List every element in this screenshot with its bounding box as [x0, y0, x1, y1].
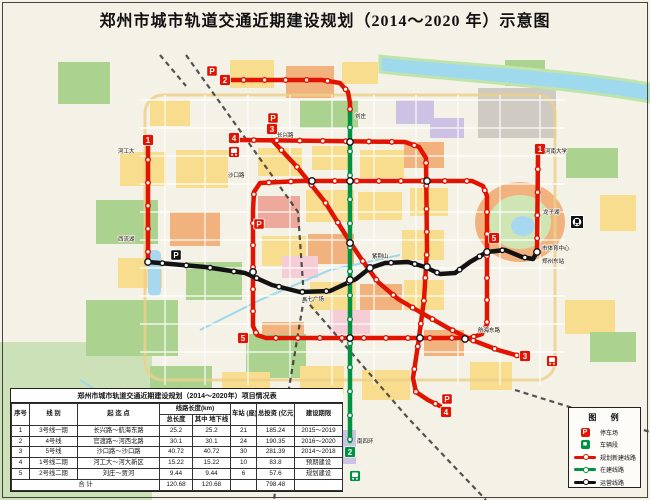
- station-marker: [423, 276, 428, 281]
- station-marker: [146, 181, 151, 186]
- table-row: 13号线一期长兴路～航海东路25.225.221185.242015～2019: [12, 425, 343, 436]
- station-marker: [274, 336, 279, 341]
- table-cell: 15.22: [160, 458, 193, 469]
- station-marker: [348, 269, 353, 274]
- station-marker: [414, 389, 419, 394]
- interchange-station-marker: [424, 178, 430, 184]
- interchange-station-marker: [484, 249, 490, 255]
- station-marker: [340, 336, 345, 341]
- station-marker: [348, 413, 353, 418]
- station-marker: [283, 78, 288, 83]
- station-marker: [536, 167, 541, 172]
- station-marker: [348, 221, 353, 226]
- table-cell: 57.6: [257, 469, 295, 480]
- station-marker: [535, 213, 540, 218]
- station-marker: [323, 201, 328, 206]
- table-cell: 15.22: [193, 458, 231, 469]
- station-marker: [348, 107, 353, 112]
- table-total-label: 合 计: [12, 480, 160, 491]
- station-marker: [450, 336, 455, 341]
- map-label: 5: [492, 234, 497, 243]
- station-marker: [300, 290, 305, 295]
- station-marker: [457, 267, 462, 272]
- table-cell: 120.68: [160, 480, 193, 491]
- screenshot-root: 1122334455 PPPPP 河工大西流湖长兴路沙口路刘庄南四环二七广场紫荆…: [0, 0, 650, 500]
- interchange-station-marker: [347, 139, 353, 145]
- station-marker: [295, 165, 300, 170]
- station-marker: [482, 188, 487, 193]
- table-cell: 沙口路～沙口路: [78, 447, 160, 458]
- table-cell: 30.1: [193, 436, 231, 447]
- station-marker: [232, 269, 237, 274]
- station-marker: [146, 158, 151, 163]
- map-label: P: [256, 220, 262, 229]
- map-label: 龙子湖: [543, 208, 560, 216]
- table-cell: 25.2: [193, 425, 231, 436]
- table-cell: 官渡路～河西北路: [78, 436, 160, 447]
- map-label: 沙口路: [228, 171, 245, 179]
- station-marker: [208, 265, 213, 270]
- map-label: P: [270, 114, 276, 123]
- table-row: 35号线沙口路～沙口路40.7240.7230281.392014～2018: [12, 447, 343, 458]
- table-cell: 9.44: [193, 469, 231, 480]
- table-cell: 21: [231, 425, 257, 436]
- interchange-station-marker: [347, 335, 353, 341]
- station-marker: [348, 437, 353, 442]
- station-marker: [389, 260, 394, 265]
- station-marker: [324, 289, 329, 294]
- interchange-station-marker: [347, 240, 353, 246]
- station-marker: [262, 78, 267, 83]
- map-label: 南四环: [357, 437, 374, 445]
- legend-item-label: 运营线路: [600, 478, 624, 487]
- legend-item-label: 在建线路: [600, 465, 624, 474]
- station-marker: [422, 298, 427, 303]
- map-label: 5: [241, 334, 246, 343]
- station-marker: [412, 262, 417, 267]
- station-marker: [406, 336, 411, 341]
- table-cell: 3号线一期: [30, 425, 78, 436]
- table-cell: 40.72: [160, 447, 193, 458]
- map-label: 郑州东站: [542, 257, 565, 265]
- station-marker: [289, 179, 294, 184]
- station-marker: [377, 179, 382, 184]
- station-marker: [415, 344, 420, 349]
- line-sample-icon: [574, 468, 596, 471]
- col-header-underground: 其中 地下线: [193, 414, 231, 425]
- station-marker: [477, 254, 482, 259]
- interchange-station-marker: [462, 336, 468, 342]
- table-cell: 河工大～河大新区: [78, 458, 160, 469]
- table-cell: 24: [231, 436, 257, 447]
- table-cell: 10: [231, 458, 257, 469]
- station-marker: [343, 87, 348, 92]
- table-cell: 长兴路～航海东路: [78, 425, 160, 436]
- station-marker: [471, 338, 476, 343]
- table-cell: 5: [12, 469, 30, 480]
- map-label: 2: [348, 448, 353, 457]
- station-marker: [410, 305, 415, 310]
- interchange-station-marker: [347, 178, 353, 184]
- legend: 图 例 P停车场■车辆段规划新建线路在建线路运营线路: [568, 407, 641, 488]
- legend-item: 规划新建线路: [573, 451, 636, 464]
- station-marker: [146, 204, 151, 209]
- table-cell: 9.44: [160, 469, 193, 480]
- station-marker: [514, 353, 519, 358]
- depot-icon: [350, 471, 361, 482]
- map-label: 3: [270, 125, 275, 134]
- map-label: 二七广场: [302, 295, 325, 303]
- station-marker: [267, 180, 272, 185]
- table-cell: 2号线二期: [30, 469, 78, 480]
- station-marker: [523, 255, 528, 260]
- interchange-station-marker: [424, 264, 430, 270]
- depot-icon: [547, 356, 558, 367]
- table-cell: 1: [12, 425, 30, 436]
- station-marker: [251, 138, 256, 143]
- table-cell: 刘庄～贾河: [78, 469, 160, 480]
- map-label: 西流湖: [118, 235, 135, 243]
- line-sample-icon: [574, 481, 596, 484]
- interchange-station-marker: [309, 178, 315, 184]
- station-marker: [485, 298, 490, 303]
- table-cell: 281.39: [257, 447, 295, 458]
- interchange-station-marker: [367, 265, 373, 271]
- station-marker: [435, 270, 440, 275]
- station-marker: [184, 263, 189, 268]
- station-marker: [399, 179, 404, 184]
- station-marker: [391, 293, 396, 298]
- station-marker: [348, 125, 353, 130]
- station-marker: [424, 253, 429, 258]
- station-marker: [430, 317, 435, 322]
- table-cell: 2015～2019: [295, 425, 343, 436]
- station-marker: [412, 143, 417, 148]
- station-marker: [251, 287, 256, 292]
- table-cell: [295, 480, 343, 491]
- station-marker: [348, 365, 353, 370]
- map-label: 2: [223, 76, 228, 85]
- station-marker: [318, 336, 323, 341]
- table-cell: 3: [12, 447, 30, 458]
- station-marker: [348, 173, 353, 178]
- table-cell: 预期建设: [295, 458, 343, 469]
- map-label: 河南大学: [545, 147, 568, 155]
- table-cell: 2016～2020: [295, 436, 343, 447]
- station-marker: [279, 148, 284, 153]
- table-row: 41号线二期河工大～河大新区15.2215.221083.8预期建设: [12, 458, 343, 469]
- station-marker: [251, 243, 256, 248]
- col-header-total-length: 总长度: [160, 414, 193, 425]
- col-header-length-group: 线路长度(km): [160, 404, 231, 415]
- table-cell: 120.68: [193, 480, 231, 491]
- station-marker: [361, 259, 366, 264]
- map-label: 紫荆山: [372, 252, 389, 260]
- table-title: 郑州市城市轨道交通近期建设规划（2014～2020年）项目情况表: [11, 389, 343, 403]
- map-label: 3: [523, 352, 528, 361]
- project-table: 郑州市城市轨道交通近期建设规划（2014～2020年）项目情况表 序号 线 别 …: [10, 388, 343, 492]
- station-marker: [348, 293, 353, 298]
- map-label: 长兴路: [277, 131, 294, 139]
- station-marker: [252, 192, 257, 197]
- station-marker: [412, 367, 417, 372]
- col-header-line: 线 别: [30, 404, 78, 426]
- legend-item-label: 停车场: [600, 428, 618, 437]
- map-label: 河工大: [118, 147, 135, 155]
- table-cell: 4: [12, 458, 30, 469]
- table-cell: 83.8: [257, 458, 295, 469]
- table-row: 52号线二期刘庄～贾河9.449.44657.6规划建设: [12, 469, 343, 480]
- station-marker: [160, 261, 165, 266]
- table-cell: 2014～2018: [295, 447, 343, 458]
- map-label: 4: [444, 408, 449, 417]
- table-cell: 4号线: [30, 436, 78, 447]
- depot-icon: [229, 147, 240, 158]
- table-cell: 30.1: [160, 436, 193, 447]
- col-header-investment: 总投资 (亿元): [257, 404, 295, 426]
- station-marker: [325, 79, 330, 84]
- station-marker: [492, 346, 497, 351]
- map-label: 4: [232, 134, 237, 143]
- station-marker: [146, 227, 151, 232]
- station-marker: [425, 230, 430, 235]
- interchange-station-marker: [250, 269, 256, 275]
- station-marker: [320, 139, 325, 144]
- station-marker: [348, 389, 353, 394]
- table-cell: 40.72: [193, 447, 231, 458]
- station-marker: [297, 138, 302, 143]
- line-sample-icon: [574, 456, 596, 459]
- table-cell: 25.2: [160, 425, 193, 436]
- station-marker: [251, 309, 256, 314]
- station-marker: [433, 401, 438, 406]
- railway-station-icon: [571, 216, 584, 229]
- station-marker: [146, 250, 151, 255]
- table-cell: 190.35: [257, 436, 295, 447]
- map-label: 航海东路: [478, 326, 501, 334]
- col-header-section: 起 迄 点: [78, 404, 160, 426]
- interchange-station-marker: [347, 277, 353, 283]
- station-marker: [485, 320, 490, 325]
- interchange-station-marker: [417, 335, 423, 341]
- station-marker: [348, 317, 353, 322]
- station-marker: [333, 179, 338, 184]
- table-cell: 798.48: [257, 480, 295, 491]
- table-cell: [231, 480, 257, 491]
- col-header-stations: 车站 (座): [231, 404, 257, 426]
- station-marker: [428, 336, 433, 341]
- station-marker: [384, 336, 389, 341]
- table-cell: 规划建设: [295, 469, 343, 480]
- station-marker: [465, 179, 470, 184]
- station-marker: [296, 336, 301, 341]
- station-marker: [348, 149, 353, 154]
- station-marker: [254, 276, 259, 281]
- depot-icon: ■: [581, 440, 590, 449]
- map-label: P: [209, 67, 215, 76]
- station-marker: [389, 140, 394, 145]
- station-marker: [424, 207, 429, 212]
- station-marker: [355, 179, 360, 184]
- station-marker: [443, 179, 448, 184]
- station-marker: [419, 321, 424, 326]
- table-cell: 2: [12, 436, 30, 447]
- table-cell: 6: [231, 469, 257, 480]
- station-marker: [485, 276, 490, 281]
- station-marker: [348, 197, 353, 202]
- table-cell: 1号线二期: [30, 458, 78, 469]
- map-label: P: [173, 251, 179, 260]
- station-marker: [500, 248, 505, 253]
- col-header-seq: 序号: [12, 404, 30, 426]
- station-marker: [450, 328, 455, 333]
- map-label: 1: [146, 136, 151, 145]
- station-marker: [254, 330, 259, 335]
- col-header-period: 建设期限: [295, 404, 343, 426]
- table-row: 24号线官渡路～河西北路30.130.124190.352016～2020: [12, 436, 343, 447]
- station-marker: [277, 284, 282, 289]
- table-total-row: 合 计120.68120.68798.48: [12, 480, 343, 491]
- interchange-station-marker: [534, 249, 540, 255]
- station-marker: [362, 336, 367, 341]
- legend-item: 在建线路: [573, 464, 636, 477]
- station-marker: [535, 190, 540, 195]
- map-label: P: [444, 395, 450, 404]
- station-marker: [374, 277, 379, 282]
- legend-item: ■车辆段: [573, 439, 636, 452]
- station-marker: [366, 139, 371, 144]
- parking-lot-icon: P: [581, 428, 590, 437]
- legend-item: 运营线路: [573, 476, 636, 489]
- legend-title: 图 例: [577, 412, 636, 423]
- station-marker: [424, 161, 429, 166]
- legend-item-label: 车辆段: [600, 440, 618, 449]
- map-label: 刘庄: [355, 112, 367, 120]
- map-label: 市体育中心: [542, 244, 570, 252]
- table-cell: 5号线: [30, 447, 78, 458]
- station-marker: [535, 236, 540, 241]
- station-marker: [304, 78, 309, 83]
- interchange-station-marker: [145, 259, 151, 265]
- map-label: 1: [538, 145, 543, 154]
- page-title: 郑州市城市轨道交通近期建设规划（2014～2020 年）示意图: [0, 7, 650, 31]
- table-cell: 185.24: [257, 425, 295, 436]
- station-marker: [485, 210, 490, 215]
- legend-item-label: 规划新建线路: [600, 453, 636, 462]
- station-marker: [241, 78, 246, 83]
- table-cell: 30: [231, 447, 257, 458]
- station-marker: [336, 220, 341, 225]
- legend-item: P停车场: [573, 426, 636, 439]
